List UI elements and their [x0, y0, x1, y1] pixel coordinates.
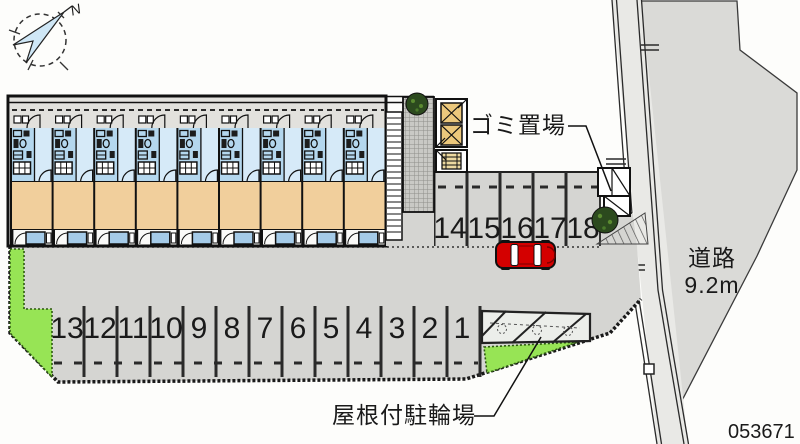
staircase	[386, 112, 402, 240]
apartment-unit	[53, 115, 95, 245]
parking-number: 13	[50, 312, 83, 345]
bicycle-shelter	[482, 311, 590, 343]
parking-number: 11	[117, 312, 148, 345]
apartment-unit	[261, 115, 303, 245]
parking-number: 17	[533, 212, 566, 245]
road-marker	[644, 364, 654, 374]
road-label: 道路	[688, 245, 736, 271]
bicycle-parking-label: 屋根付駐輪場	[332, 402, 476, 428]
parking-number: 9	[191, 312, 208, 345]
parking-number: 6	[290, 312, 307, 345]
apartment-unit	[177, 115, 219, 245]
parking-number: 15	[467, 212, 500, 245]
garbage-area-label: ゴミ置場	[470, 112, 566, 138]
site-plan: 13 12 11 10 9 8 7 6 5 4 3 2 1 14 15 16 1…	[0, 0, 800, 444]
storage-lockers	[436, 99, 467, 172]
tree-icon	[592, 207, 618, 233]
plan-number: 053671	[728, 421, 795, 443]
parking-number: 4	[356, 312, 373, 345]
parking-number: 1	[454, 312, 471, 345]
parking-number: 12	[83, 312, 116, 345]
road-width-label: 9.2m	[684, 272, 739, 298]
parking-number: 5	[323, 312, 340, 345]
parking-number: 14	[433, 212, 466, 245]
parking-number: 3	[389, 312, 406, 345]
apartment-unit	[302, 115, 344, 245]
site-plan-drawing: 13 12 11 10 9 8 7 6 5 4 3 2 1 14 15 16 1…	[0, 0, 800, 444]
apartment-unit	[11, 115, 53, 245]
parking-number: 10	[149, 312, 182, 345]
apartment-unit	[344, 115, 386, 245]
apartment-unit	[219, 115, 261, 245]
parked-car	[496, 240, 555, 270]
apartment-unit	[136, 115, 178, 245]
tree-icon	[406, 93, 428, 115]
parking-number: 7	[257, 312, 274, 345]
apartment-unit	[94, 115, 136, 245]
parking-number: 8	[224, 312, 241, 345]
parking-number: 2	[422, 312, 439, 345]
apartment-building	[8, 96, 434, 246]
